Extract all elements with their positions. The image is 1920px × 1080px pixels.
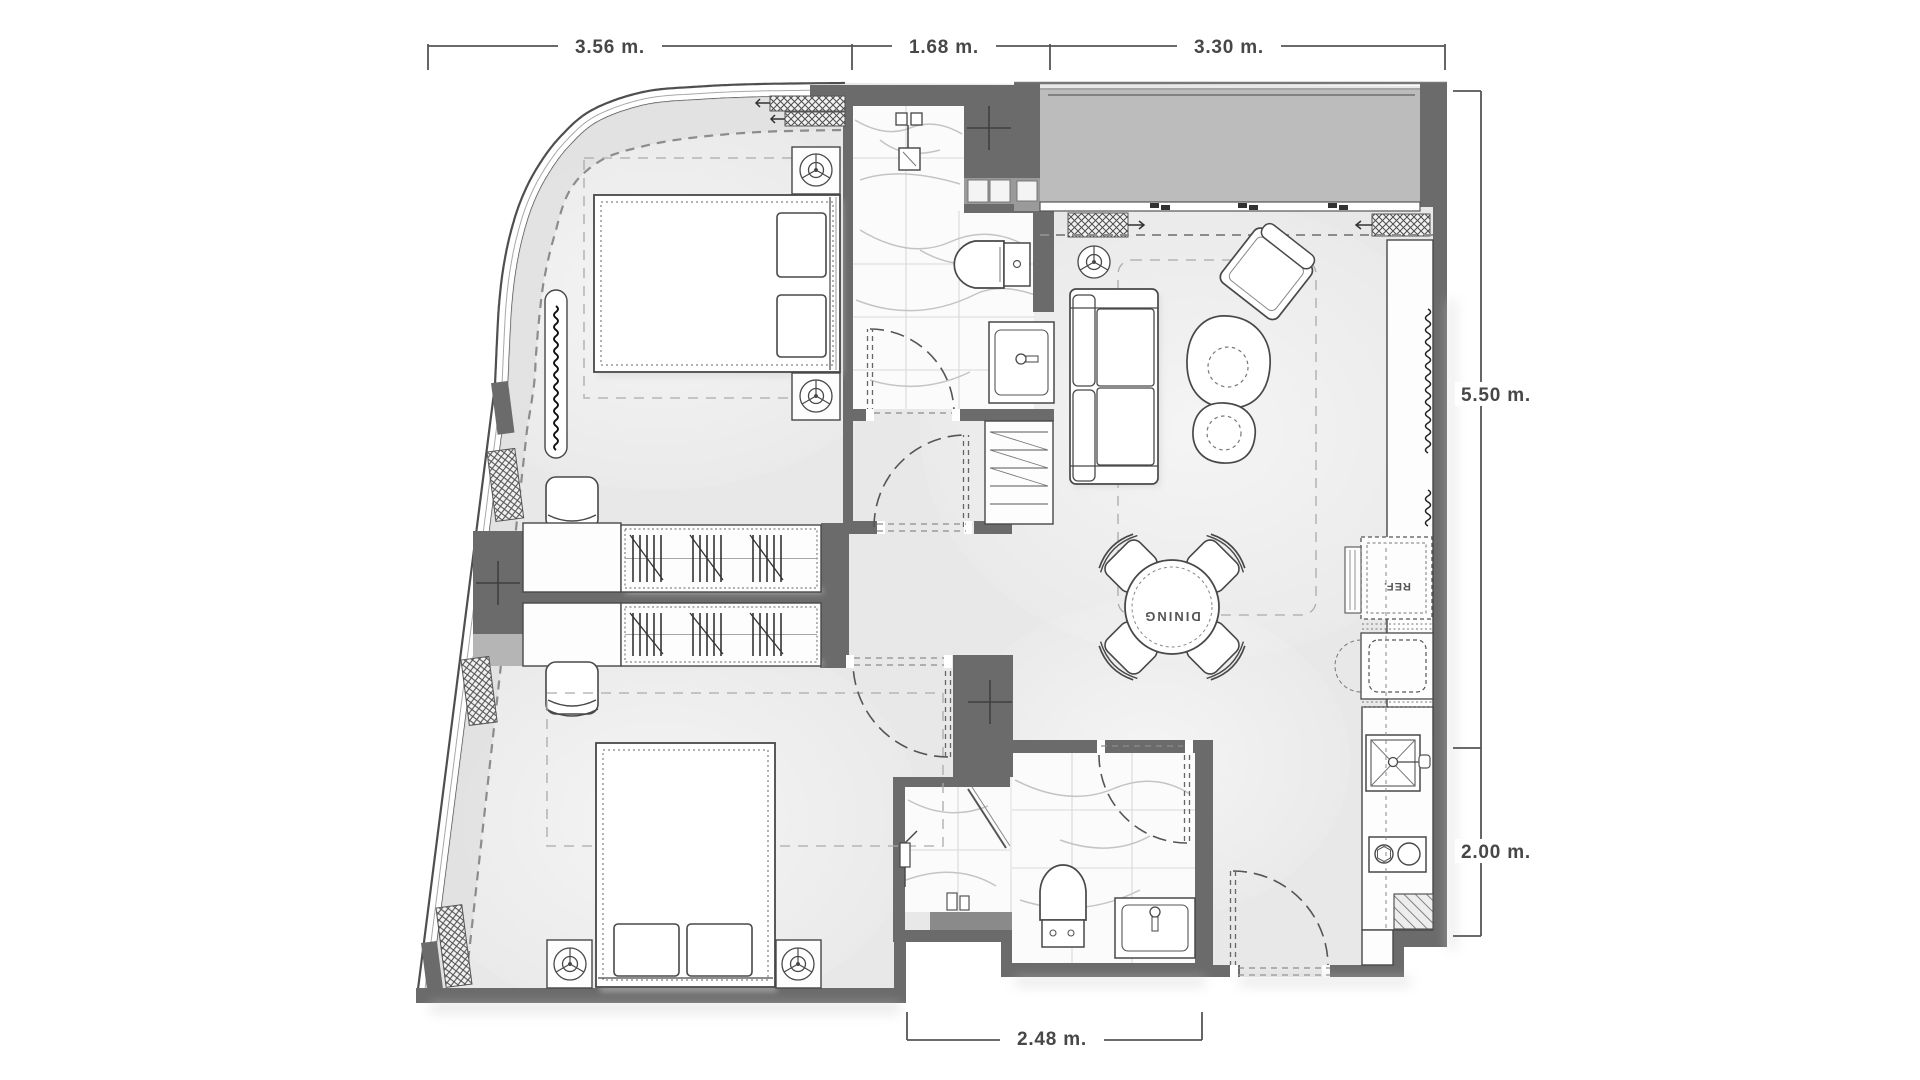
svg-text:3.30 m.: 3.30 m. (1194, 37, 1264, 58)
svg-text:1.68 m.: 1.68 m. (909, 37, 979, 58)
svg-text:2.48 m.: 2.48 m. (1017, 1029, 1087, 1050)
svg-text:2.00 m.: 2.00 m. (1461, 842, 1531, 863)
svg-text:5.50 m.: 5.50 m. (1461, 385, 1531, 406)
svg-text:DINING: DINING (1143, 609, 1201, 624)
svg-text:3.56 m.: 3.56 m. (575, 37, 645, 58)
svg-text:REF.: REF. (1383, 580, 1411, 592)
